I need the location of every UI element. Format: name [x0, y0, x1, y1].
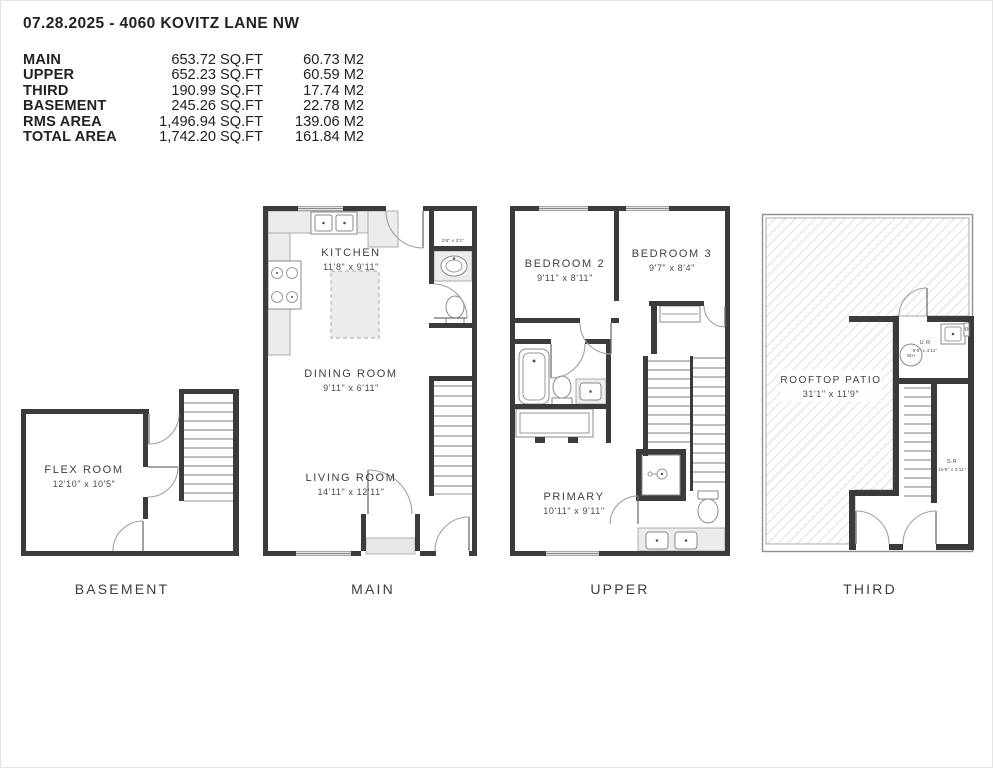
- water-heater-label: WH: [907, 353, 915, 358]
- row-m2: 60.73 M2: [263, 52, 364, 68]
- row-sqft: 245.26 SQ.FT: [141, 98, 263, 114]
- row-m2: 60.59 M2: [263, 67, 364, 83]
- patio-dims: 31'1" x 11'9": [803, 389, 860, 399]
- kitchen-name: KITCHEN: [321, 247, 380, 259]
- row-label: THIRD: [23, 83, 141, 99]
- floor-label-third: THIRD: [770, 581, 970, 597]
- row-sqft: 1,496.94 SQ.FT: [141, 114, 263, 130]
- vanity-sink-icon: [576, 379, 606, 404]
- closet-dims: 3'6" x 2'1": [442, 238, 464, 243]
- bedroom2-dims: 9'11" x 8'11": [537, 273, 593, 283]
- closet-shelf: [660, 306, 700, 322]
- bathtub-icon: [519, 349, 549, 404]
- third-floorplan: WH ROOFTOP PATIO 31'1" x 11'9" U.R 6'6" …: [761, 213, 974, 553]
- utility-dims: 6'6" x 4'11": [913, 348, 938, 353]
- table-row: UPPER 652.23 SQ.FT 60.59 M2: [23, 67, 364, 82]
- table-row: MAIN 653.72 SQ.FT 60.73 M2: [23, 52, 364, 67]
- bedroom3-name: BEDROOM 3: [632, 248, 712, 260]
- row-label: RMS AREA: [23, 114, 141, 130]
- kitchen-island: [331, 271, 379, 338]
- primary-name: PRIMARY: [543, 491, 604, 503]
- fridge-icon: [368, 211, 398, 247]
- storage-dims: 15'6" x 2'11": [938, 467, 966, 472]
- stairs-icon: [434, 386, 472, 494]
- table-row: BASEMENT 245.26 SQ.FT 22.78 M2: [23, 98, 364, 113]
- floorplan-sheet: 07.28.2025 - 4060 KOVITZ LANE NW MAIN 65…: [0, 0, 993, 768]
- row-m2: 139.06 M2: [263, 114, 364, 130]
- toilet-icon: [552, 376, 572, 406]
- row-m2: 17.74 M2: [263, 83, 364, 99]
- utility-box: [964, 323, 969, 336]
- row-sqft: 1,742.20 SQ.FT: [141, 129, 263, 145]
- bedroom2-name: BEDROOM 2: [525, 258, 605, 270]
- double-vanity-icon: [638, 528, 725, 551]
- row-sqft: 653.72 SQ.FT: [141, 52, 263, 68]
- living-dims: 14'11" x 12'11": [317, 487, 384, 497]
- floor-label-upper: UPPER: [520, 581, 720, 597]
- row-sqft: 190.99 SQ.FT: [141, 83, 263, 99]
- toilet-icon: [446, 296, 464, 326]
- stairs-icon: [184, 403, 233, 501]
- primary-dims: 10'11" x 9'11": [543, 506, 604, 516]
- row-label: MAIN: [23, 52, 141, 68]
- kitchen-dims: 11'8" x 9'11": [323, 262, 379, 272]
- stairs-icon: [904, 388, 931, 496]
- table-row: TOTAL AREA 1,742.20 SQ.FT 161.84 M2: [23, 129, 364, 144]
- utility-name: U.R: [920, 340, 931, 346]
- wardrobe-icon: [516, 409, 593, 437]
- upper-floorplan: BEDROOM 2 9'11" x 8'11" BEDROOM 3 9'7" x…: [510, 206, 730, 556]
- stove-icon: [268, 261, 301, 309]
- area-table: MAIN 653.72 SQ.FT 60.73 M2 UPPER 652.23 …: [23, 52, 364, 144]
- dining-name: DINING ROOM: [304, 368, 397, 380]
- row-sqft: 652.23 SQ.FT: [141, 67, 263, 83]
- row-m2: 22.78 M2: [263, 98, 364, 114]
- row-label: UPPER: [23, 67, 141, 83]
- flex-room-name: FLEX ROOM: [44, 464, 123, 476]
- kitchen-sink-icon: [311, 212, 357, 234]
- living-name: LIVING ROOM: [306, 472, 397, 484]
- floor-label-basement: BASEMENT: [22, 581, 222, 597]
- dining-dims: 9'11" x 6'11": [323, 383, 379, 393]
- shower-icon: [636, 449, 686, 501]
- floor-label-main: MAIN: [273, 581, 473, 597]
- entry-step: [366, 538, 415, 554]
- table-row: THIRD 190.99 SQ.FT 17.74 M2: [23, 83, 364, 98]
- room-label-flex: FLEX ROOM 12'10" x 10'5": [44, 464, 123, 489]
- table-row: RMS AREA 1,496.94 SQ.FT 139.06 M2: [23, 114, 364, 129]
- washer-icon: [941, 324, 965, 344]
- flex-room-dims: 12'10" x 10'5": [53, 479, 116, 489]
- bathroom-sink-icon: [434, 251, 472, 281]
- patio-name: ROOFTOP PATIO: [780, 375, 881, 386]
- row-label: BASEMENT: [23, 98, 141, 114]
- main-floorplan: KITCHEN 11'8" x 9'11" DINING ROOM 9'11" …: [263, 206, 477, 556]
- row-m2: 161.84 M2: [263, 129, 364, 145]
- basement-floorplan: FLEX ROOM 12'10" x 10'5": [21, 389, 239, 561]
- storage-name: S.R: [947, 459, 957, 465]
- ensuite-toilet-icon: [698, 491, 718, 523]
- row-label: TOTAL AREA: [23, 129, 141, 145]
- bedroom3-dims: 9'7" x 8'4": [649, 263, 695, 273]
- page-title: 07.28.2025 - 4060 KOVITZ LANE NW: [23, 15, 299, 33]
